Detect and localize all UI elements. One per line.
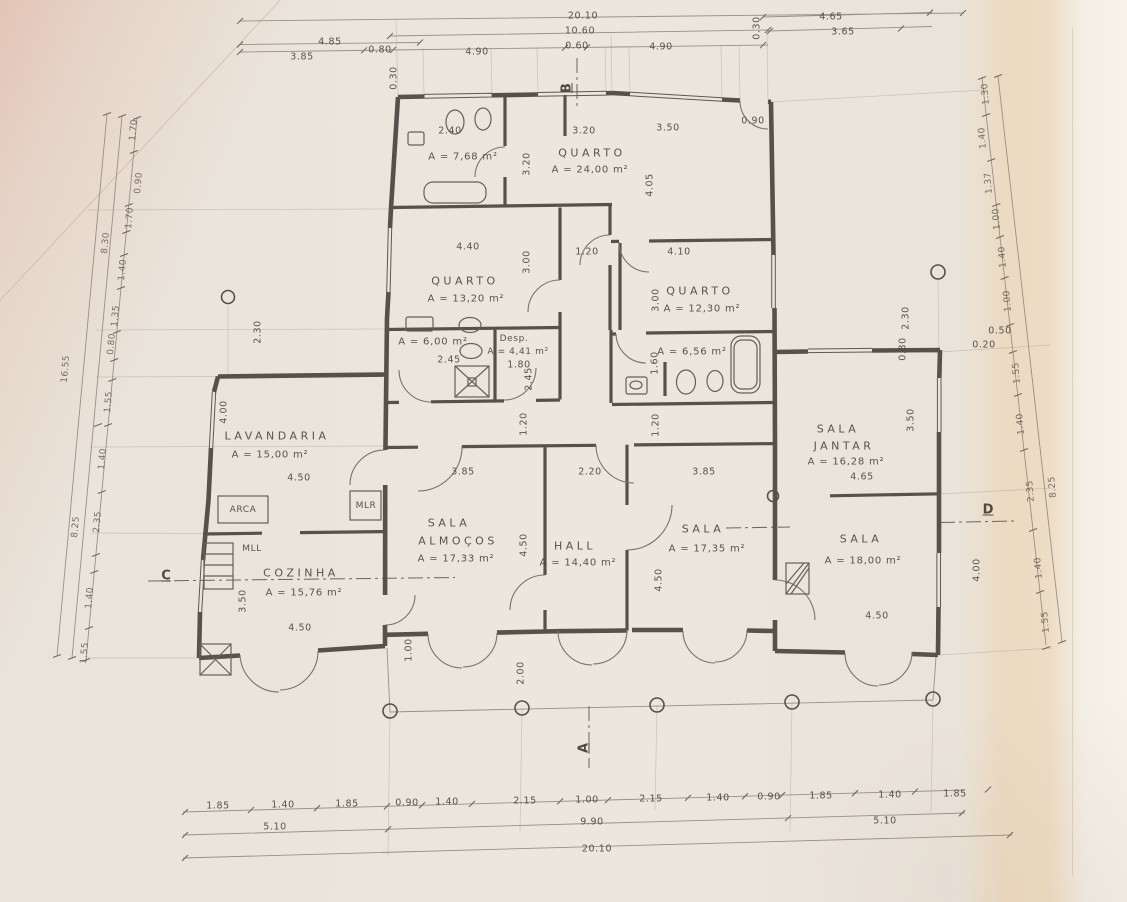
- dim-label: 9.90: [580, 817, 604, 828]
- chain-label: 1.40: [117, 259, 129, 281]
- chain-label: 1.40: [977, 127, 989, 149]
- fixture-label-mlr: MLR: [356, 501, 377, 511]
- dim-label: 2.45: [524, 367, 535, 391]
- room-label-lavandaria: LAVANDARIA: [225, 430, 330, 443]
- dim-label: 0.80: [368, 45, 392, 56]
- dim-label: 1.20: [651, 413, 662, 437]
- room-label-quarto-13: QUARTO: [431, 275, 498, 288]
- dim-label: 20.10: [582, 844, 612, 855]
- chain-label: 1.37: [983, 172, 995, 194]
- chain-label: 1.00: [991, 208, 1003, 230]
- room-label-sala-17: SALA: [682, 523, 725, 536]
- chain-label: 1.40: [84, 587, 96, 609]
- dim-label: 3.20: [572, 126, 596, 137]
- dim-label: 3.20: [522, 152, 533, 176]
- dim-label: 1.40: [878, 790, 902, 801]
- sm-label: A = 4,41 m²: [487, 347, 548, 357]
- chain-label: 1.30: [980, 83, 992, 105]
- dim-label: 1.40: [435, 797, 459, 808]
- chain-label: 1.40: [97, 448, 109, 470]
- area-label: A = 14,40 m²: [540, 558, 617, 569]
- chain-label: 16.55: [60, 355, 72, 384]
- dim-label: 0.30: [898, 337, 909, 361]
- dim-label: 4.65: [850, 472, 874, 483]
- dim-label: 1.85: [809, 791, 833, 802]
- chain-label: 0.80: [106, 333, 118, 355]
- chain-label: 1.55: [1011, 362, 1023, 384]
- chain-label: 1.55: [1040, 611, 1052, 633]
- dim-label: 1.40: [271, 800, 295, 811]
- dim-label: 4.90: [465, 47, 489, 58]
- dim-label: 0.30: [752, 16, 763, 40]
- chain-label: 8.25: [1047, 476, 1059, 498]
- chain-label: 1.55: [79, 642, 91, 664]
- dim-label: 3.85: [692, 467, 716, 478]
- dim-label: 4.10: [667, 247, 691, 258]
- room-label: ALMOÇOS: [418, 535, 498, 548]
- dim-label: 4.50: [519, 533, 530, 557]
- fixture-label-arca: ARCA: [230, 505, 257, 515]
- dim-label: 3.50: [238, 589, 249, 613]
- area-label: A = 18,00 m²: [825, 556, 902, 567]
- section-marker-d: D: [983, 503, 994, 518]
- dim-label: 1.20: [519, 412, 530, 436]
- area-label: A = 13,20 m²: [428, 294, 505, 305]
- chain-label: 1.70: [128, 119, 140, 141]
- dim-label: 3.50: [906, 408, 917, 432]
- chain-label: 0.90: [133, 172, 145, 194]
- room-label: JANTAR: [814, 440, 875, 453]
- chain-label: 8.30: [100, 232, 112, 254]
- dim-label: 1.40: [706, 793, 730, 804]
- room-label-cozinha: COZINHA: [263, 567, 339, 580]
- chain-label: 1.35: [110, 305, 122, 327]
- chain-label: 2.35: [1025, 480, 1037, 502]
- chain-label: 8.25: [70, 516, 82, 538]
- dim-label: 4.50: [654, 568, 665, 592]
- dim-label: 5.10: [263, 822, 287, 833]
- dim-label: 4.40: [456, 242, 480, 253]
- dim-label: 2.20: [578, 467, 602, 478]
- dim-label: 2.15: [513, 796, 537, 807]
- dim-label: 3.65: [831, 27, 855, 38]
- dim-label: 4.05: [645, 173, 656, 197]
- room-label-sala-almocos: SALA: [428, 517, 471, 530]
- area-label: A = 24,00 m²: [552, 165, 629, 176]
- text-labels-layer: QUARTOA = 24,00 m²A = 7,68 m²QUARTOA = 1…: [0, 0, 1127, 902]
- area-label: A = 7,68 m²: [428, 152, 498, 163]
- dim-label: 1.20: [575, 247, 599, 258]
- dim-label: 4.90: [649, 42, 673, 53]
- room-label-quarto-12: QUARTO: [666, 285, 733, 298]
- chain-label: 2.35: [92, 511, 104, 533]
- dim-label: 3.50: [656, 123, 680, 134]
- dim-label: 0.90: [757, 792, 781, 803]
- dim-label: 20.10: [568, 11, 598, 22]
- room-label-sala-jantar: SALA: [817, 423, 860, 436]
- area-label: A = 6,56 m²: [657, 347, 727, 358]
- dim-label: 2.30: [253, 320, 264, 344]
- dim-label: 3.85: [451, 467, 475, 478]
- room-label-despensa: Desp.: [500, 334, 529, 344]
- dim-label: 4.00: [219, 400, 230, 424]
- dim-label: 0.60: [565, 41, 589, 52]
- area-label: A = 17,33 m²: [418, 554, 495, 565]
- dim-label: 2.40: [438, 126, 462, 137]
- dim-label: 1.00: [404, 638, 415, 662]
- dim-label: 1.00: [575, 795, 599, 806]
- chain-label: 1.40: [1015, 413, 1027, 435]
- room-label-hall: HALL: [554, 540, 596, 553]
- dim-label: 1.85: [943, 789, 967, 800]
- chain-label: 1.40: [1033, 557, 1045, 579]
- dim-label: 4.50: [287, 473, 311, 484]
- dim-label: 2.45: [437, 355, 461, 366]
- dim-label: 3.85: [290, 52, 314, 63]
- dim-label: 0.30: [389, 66, 400, 90]
- chain-label: 1.40: [997, 246, 1009, 268]
- dim-label: 0.90: [395, 798, 419, 809]
- area-label: A = 16,28 m²: [808, 457, 885, 468]
- dim-label: 0.90: [741, 116, 765, 127]
- section-marker-a: A: [577, 743, 592, 753]
- dim-label: 1.60: [650, 351, 661, 375]
- room-label-sala-18: SALA: [840, 533, 883, 546]
- chain-label: 1.70: [124, 207, 136, 229]
- area-label: A = 6,00 m²: [398, 337, 468, 348]
- dim-label: 3.00: [522, 250, 533, 274]
- scanned-floor-plan-page: QUARTOA = 24,00 m²A = 7,68 m²QUARTOA = 1…: [0, 0, 1127, 902]
- dim-label: 4.85: [318, 37, 342, 48]
- area-label: A = 12,30 m²: [664, 304, 741, 315]
- dim-label: 4.50: [865, 611, 889, 622]
- area-label: A = 15,00 m²: [232, 450, 309, 461]
- dim-label: 0.20: [972, 340, 996, 351]
- dim-label: 3.00: [651, 288, 662, 312]
- dim-label: 4.50: [288, 623, 312, 634]
- fixture-label-mll: MLL: [242, 544, 262, 554]
- chain-label: 1.55: [103, 391, 115, 413]
- section-marker-c: C: [161, 569, 171, 584]
- dim-label: 2.00: [516, 661, 527, 685]
- area-label: A = 17,35 m²: [669, 544, 746, 555]
- room-label-quarto-24: QUARTO: [558, 147, 625, 160]
- dim-label: 1.85: [206, 801, 230, 812]
- chain-label: 1.00: [1002, 290, 1014, 312]
- dim-label: 0.50: [988, 326, 1012, 337]
- dim-label: 2.30: [901, 306, 912, 330]
- area-label: A = 15,76 m²: [266, 588, 343, 599]
- dim-label: 10.60: [565, 26, 595, 37]
- dim-label: 4.65: [819, 12, 843, 23]
- dim-label: 2.15: [639, 794, 663, 805]
- dim-label: 1.85: [335, 799, 359, 810]
- dim-label: 5.10: [873, 816, 897, 827]
- section-marker-b: B: [560, 83, 575, 93]
- dim-label: 4.00: [972, 558, 983, 582]
